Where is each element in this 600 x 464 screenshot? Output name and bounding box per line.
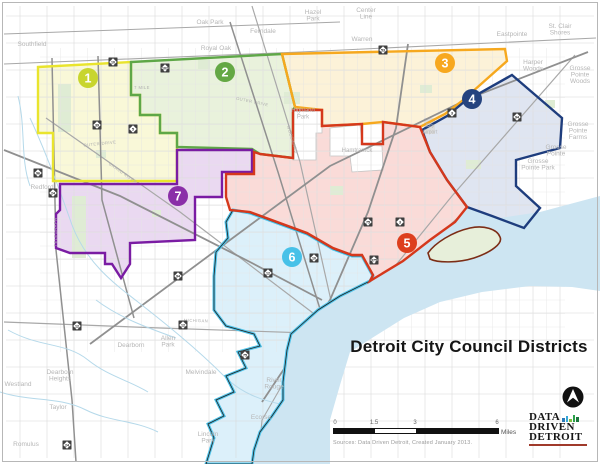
road-label: TELEGRAPH — [53, 218, 58, 247]
district-6-badge: 6 — [282, 247, 302, 267]
highway-shield-icon: 10 — [109, 58, 118, 67]
place-label: AllenPark — [161, 335, 176, 349]
highway-shield-icon: 3 — [396, 218, 405, 227]
scale-bar: 0 1.5 3 6 Miles — [333, 420, 519, 442]
scale-unit-label: Miles — [501, 429, 516, 436]
highway-shield-icon: 94 — [513, 113, 522, 122]
badge-number: 5 — [404, 236, 411, 250]
scale-tick-1-5: 1.5 — [370, 420, 378, 426]
district-3-badge: 3 — [435, 53, 455, 73]
park-area — [58, 84, 71, 132]
highway-shield-icon: 53 — [379, 46, 388, 55]
shield-number: 5 — [132, 128, 134, 132]
district-7-badge: 7 — [168, 186, 188, 206]
logo-tagline-strip — [529, 444, 587, 447]
highway-shield-icon: 12 — [73, 322, 82, 331]
place-label: GrossePointeWoods — [570, 65, 591, 85]
badge-number: 1 — [85, 71, 92, 85]
shield-number: 94 — [176, 275, 180, 279]
place-label: GrossePointeFarms — [568, 121, 589, 141]
shield-number: 10 — [111, 61, 115, 65]
shield-number: 12 — [75, 325, 79, 329]
highway-shield-icon: 96 — [34, 169, 43, 178]
place-label: Ecorse — [251, 414, 272, 421]
badge-number: 7 — [175, 189, 182, 203]
shield-number: 12 — [181, 324, 185, 328]
shield-number: 75 — [366, 221, 370, 225]
shield-number: 10 — [312, 257, 316, 261]
highway-shield-icon: 94 — [174, 272, 183, 281]
place-label: Romulus — [13, 441, 39, 448]
freeway-696 — [4, 22, 340, 34]
place-label: HarperWoods — [523, 59, 544, 73]
park-area — [420, 85, 432, 93]
badge-number: 6 — [289, 250, 296, 264]
scale-tick-3: 3 — [413, 420, 416, 426]
road-label: MICHIGAN — [184, 318, 208, 324]
place-label: Dearborn — [117, 342, 144, 349]
scale-bar-graphic — [333, 428, 499, 434]
place-label: St. ClairShores — [548, 23, 572, 37]
place-label: GrossePointe Park — [521, 158, 555, 172]
place-label: GrossePointe — [546, 144, 567, 158]
place-label: Westland — [5, 381, 32, 388]
place-label: Ferndale — [250, 28, 276, 35]
highway-shield-icon: 24 — [63, 441, 72, 450]
source-note: Sources: Data Driven Detroit, Created Ja… — [333, 440, 472, 446]
shield-number: 39 — [95, 124, 99, 128]
shield-number: 24 — [51, 192, 55, 196]
shield-number: 3 — [399, 221, 401, 225]
highway-shield-icon: 5 — [129, 125, 138, 134]
place-label: RiverRouge — [264, 377, 284, 391]
place-label: Warren — [351, 36, 372, 43]
shield-number: 96 — [36, 172, 40, 176]
highway-shield-icon: 102 — [161, 64, 170, 73]
park-area — [198, 60, 210, 69]
place-label: HazelPark — [305, 9, 322, 23]
stream — [0, 392, 158, 432]
place-label: Hamtramck — [342, 148, 374, 154]
shield-number: 3 — [451, 112, 453, 116]
place-label: Southfield — [18, 41, 47, 48]
shield-number: 75 — [243, 354, 247, 358]
badge-number: 3 — [442, 56, 449, 70]
shield-number: 24 — [65, 444, 69, 448]
shield-number: 94 — [515, 116, 519, 120]
highway-shield-icon: 75 — [241, 351, 250, 360]
place-label: Taylor — [49, 404, 67, 411]
highway-shield-icon: 10 — [310, 254, 319, 263]
bar — [576, 417, 579, 422]
map-figure: SouthfieldOak ParkRoyal OakFerndaleHazel… — [0, 0, 600, 464]
highway-shield-icon: 24 — [49, 189, 58, 198]
scale-tick-0: 0 — [333, 420, 336, 426]
north-arrow-icon — [561, 385, 585, 409]
highway-shield-icon: 375 — [370, 256, 379, 265]
highway-shield-icon: 39 — [93, 121, 102, 130]
scale-tick-6: 6 — [495, 420, 498, 426]
highway-shield-icon: 12 — [264, 269, 273, 278]
shield-number: 53 — [381, 49, 385, 53]
place-label: Melvindale — [185, 369, 216, 376]
logo-word-detroit: DETROIT — [529, 432, 593, 442]
highway-shield-icon: 3 — [448, 109, 457, 118]
badge-number: 4 — [469, 92, 476, 106]
shield-number: 102 — [162, 67, 168, 71]
place-label: Oak Park — [196, 19, 224, 26]
district-4-badge: 4 — [462, 89, 482, 109]
stream — [96, 300, 176, 338]
detroit-districts-map: SouthfieldOak ParkRoyal OakFerndaleHazel… — [0, 0, 600, 464]
district-2-badge: 2 — [215, 62, 235, 82]
badge-number: 2 — [222, 65, 229, 79]
highway-shield-icon: 75 — [364, 218, 373, 227]
park-area — [330, 186, 343, 195]
shield-number: 375 — [371, 259, 377, 263]
place-label: Eastpointe — [497, 31, 528, 38]
road-label: 7 MILE — [134, 85, 150, 90]
place-label: Royal Oak — [201, 45, 232, 52]
highway-shield-icon: 12 — [179, 321, 188, 330]
map-title: Detroit City Council Districts — [346, 337, 592, 357]
place-label: CenterLine — [356, 7, 376, 21]
district-1-badge: 1 — [78, 68, 98, 88]
district-5-badge: 5 — [397, 233, 417, 253]
shield-number: 12 — [266, 272, 270, 276]
data-driven-detroit-logo: DATA DRIVEN DETROIT — [529, 412, 593, 446]
place-label: DearbornHeights — [46, 369, 73, 383]
